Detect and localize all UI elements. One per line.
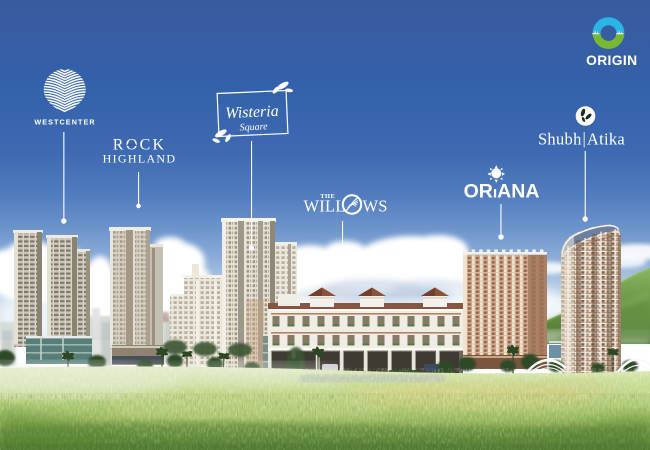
svg-text:ORıANA: ORıANA [464,180,540,202]
svg-text:WS: WS [363,197,388,216]
svg-text:ORIGIN: ORIGIN [586,53,637,68]
svg-text:Square: Square [239,121,268,133]
svg-text:WILL: WILL [304,197,346,216]
svg-text:Wisteria: Wisteria [225,103,279,122]
svg-text:WESTCENTER: WESTCENTER [34,118,95,127]
svg-text:HIGHLAND: HIGHLAND [103,152,177,166]
svg-text:Shubh|Atika: Shubh|Atika [538,129,625,148]
